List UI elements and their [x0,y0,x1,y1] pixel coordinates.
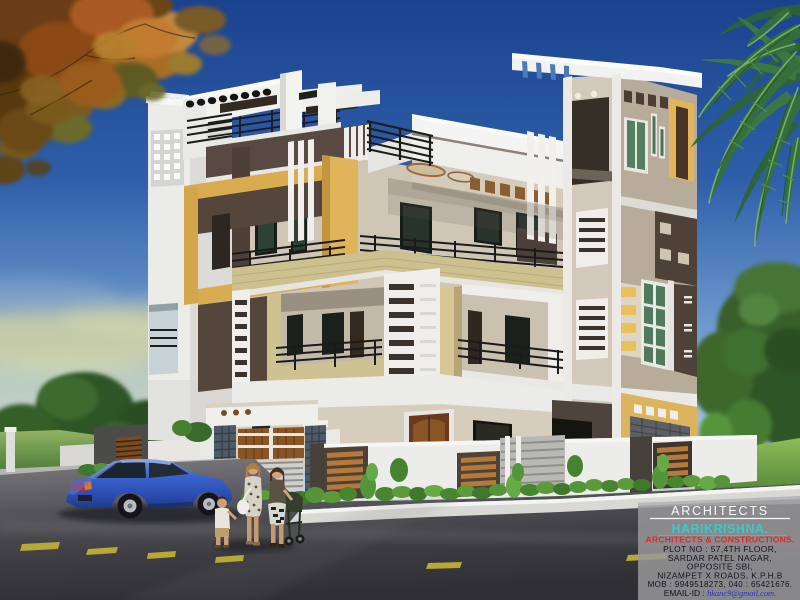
svg-text:ARCHITECTS: ARCHITECTS [671,504,769,518]
svg-text:NIZAMPET X ROADS, K.P.H.B: NIZAMPET X ROADS, K.P.H.B [657,571,783,581]
svg-text:ARCHITECTS & CONSTRUCTIONS.: ARCHITECTS & CONSTRUCTIONS. [645,535,794,545]
svg-text:EMAIL-ID : hkanc9@gmail.com.: EMAIL-ID : hkanc9@gmail.com. [664,588,776,598]
